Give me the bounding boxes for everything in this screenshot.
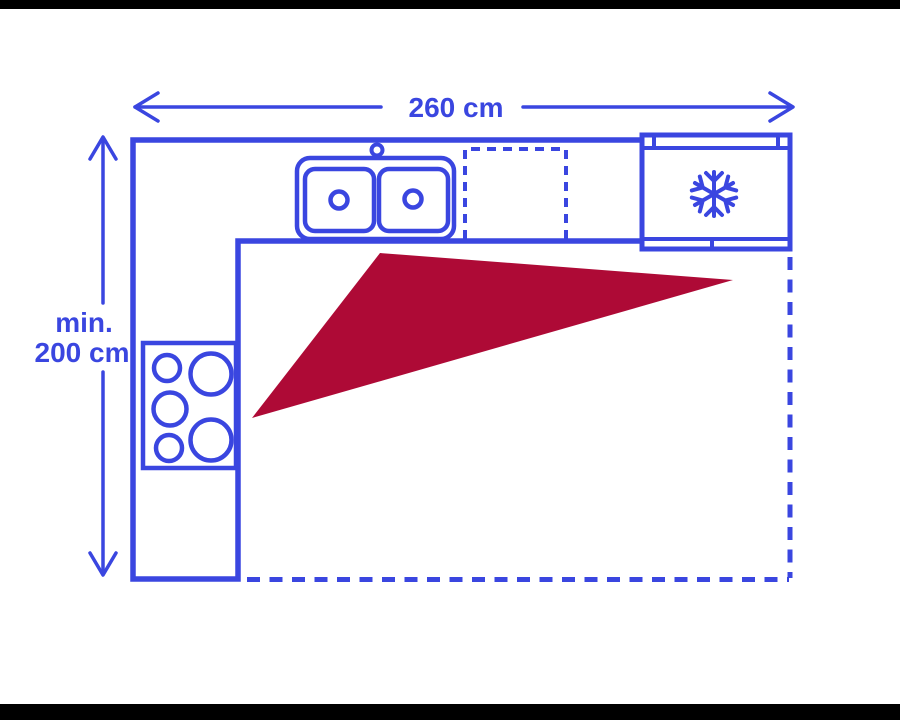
sink-basin-left [305,169,374,231]
sink-drain-left [331,192,348,209]
cooktop [143,343,236,468]
height-dimension-label-line2: 200 cm [35,337,130,368]
width-dimension-label: 260 cm [409,92,504,123]
burner-large-top-right [191,354,232,395]
work-triangle [252,253,733,418]
sink-faucet [372,145,383,156]
reserved-appliance-space [465,149,566,239]
burner-large-bottom-right [191,420,232,461]
kitchen-plan-diagram: 260 cm min. 200 cm [0,0,900,720]
burner-small-bottom-left [156,435,182,461]
burner-medium-mid-left [154,393,187,426]
sink-basin-right [379,169,448,231]
kitchen-plan-frame: 260 cm min. 200 cm [0,0,900,720]
sink [297,145,454,240]
height-dimension-label-line1: min. [55,307,113,338]
burner-small-top-left [154,355,180,381]
refrigerator [642,135,790,249]
snowflake-icon [691,172,737,216]
sink-drain-right [405,191,422,208]
